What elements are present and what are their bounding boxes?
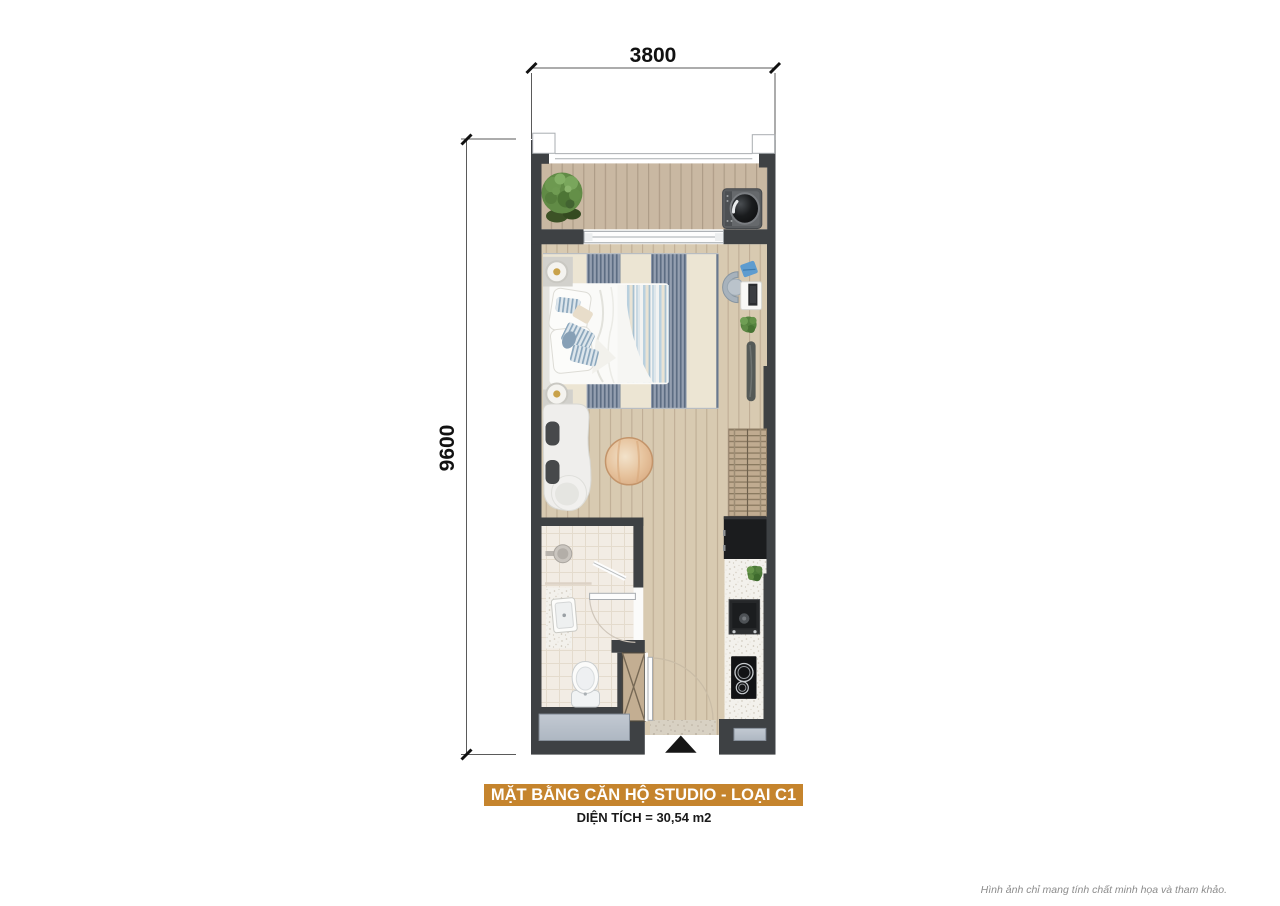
svg-text:3800: 3800 [630,44,677,67]
svg-text:9600: 9600 [436,425,459,472]
